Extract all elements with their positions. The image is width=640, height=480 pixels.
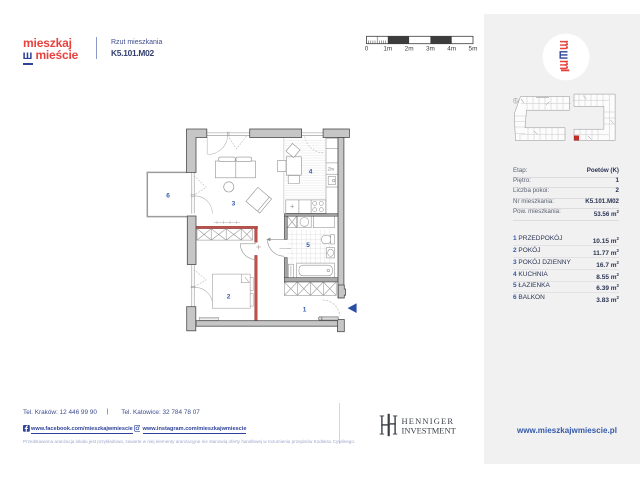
svg-text:INVESTMENT: INVESTMENT: [402, 425, 457, 435]
svg-text:3: 3: [232, 200, 236, 207]
svg-text:4: 4: [309, 169, 313, 176]
svg-text:0: 0: [365, 46, 369, 53]
svg-text:4m: 4m: [447, 46, 456, 53]
svg-text:mшm: mшm: [557, 40, 574, 70]
svg-text:3m: 3m: [426, 46, 435, 53]
svg-text:5m: 5m: [469, 46, 478, 53]
svg-text:5: 5: [306, 242, 310, 249]
svg-text:1m: 1m: [383, 46, 392, 53]
svg-text:6: 6: [166, 193, 170, 200]
svg-text:Zlw: Zlw: [328, 166, 335, 171]
svg-text:1: 1: [303, 307, 307, 314]
svg-text:2m: 2m: [405, 46, 414, 53]
svg-text:2: 2: [227, 294, 231, 301]
